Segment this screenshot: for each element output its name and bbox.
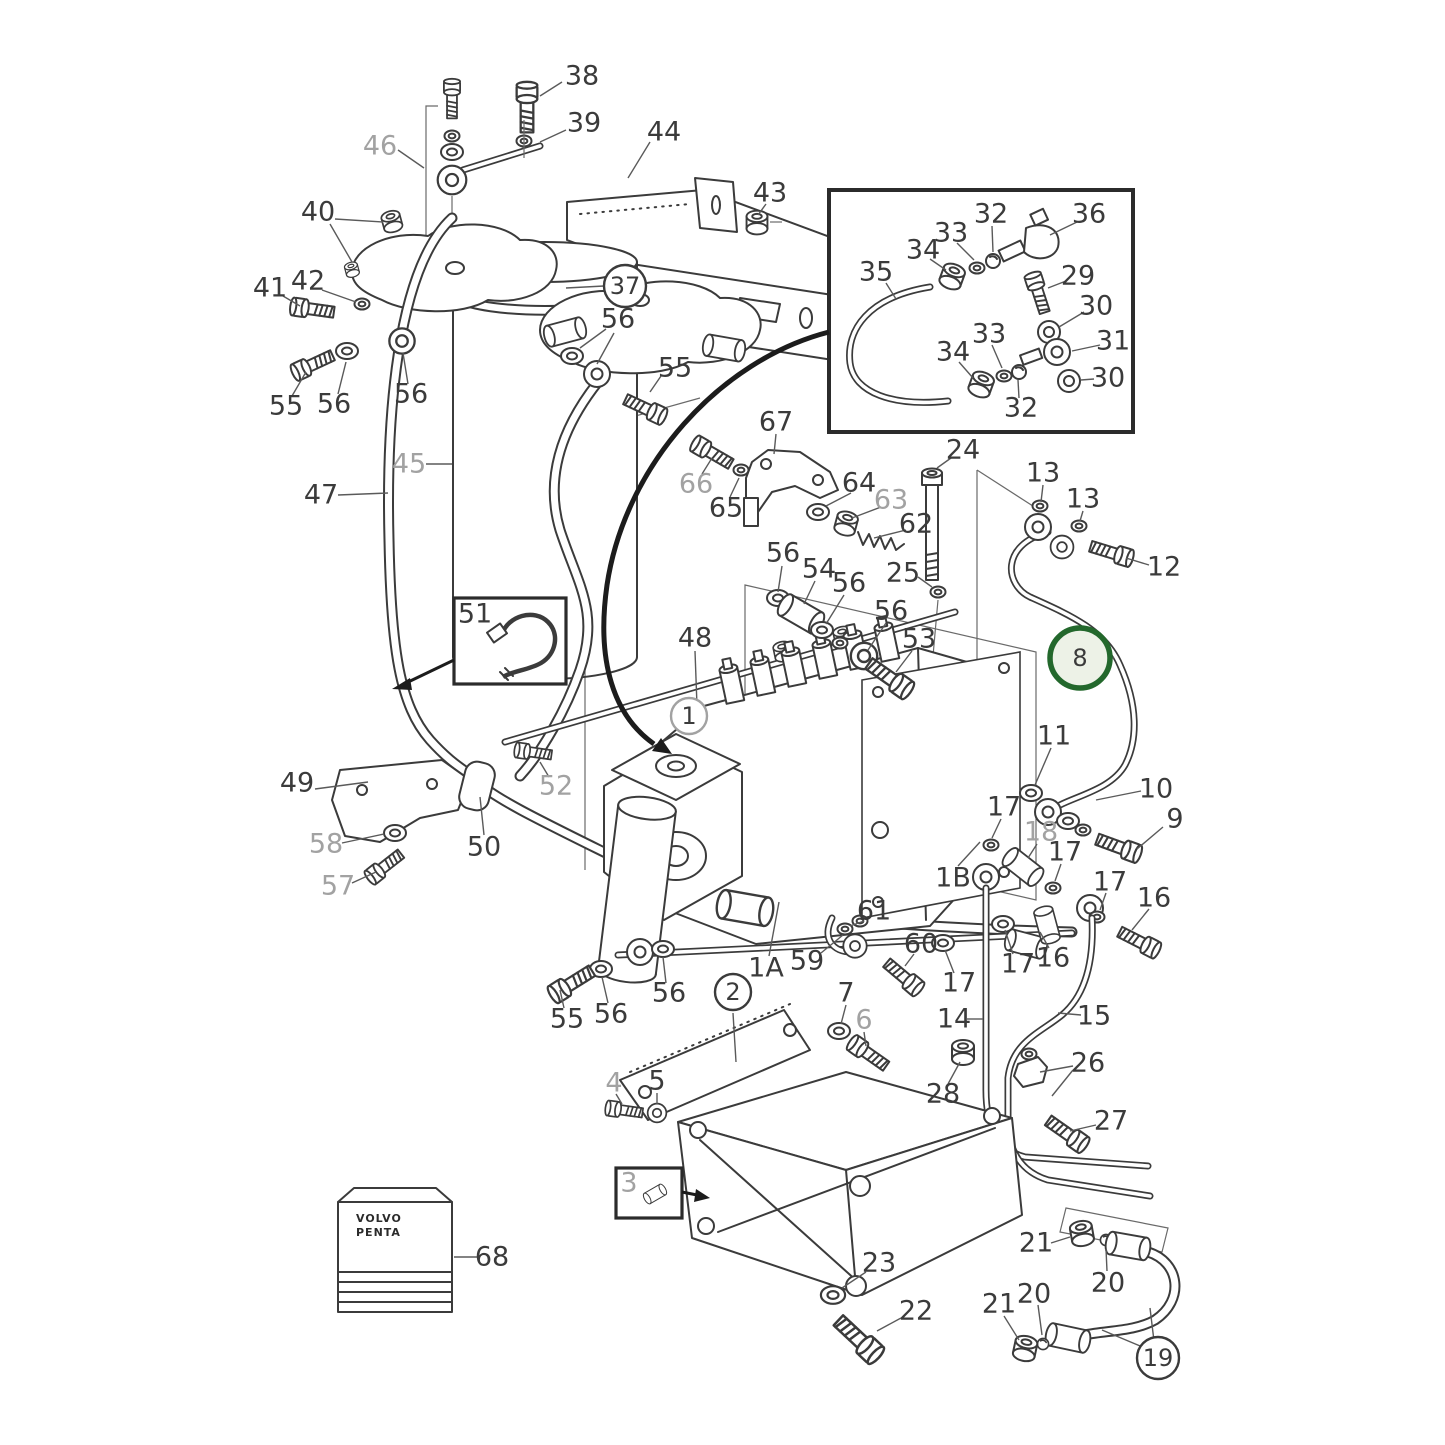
part-number-text: 13 [1026,458,1060,489]
part-callout-9: 9 [1137,804,1184,850]
part-number-text: 53 [902,624,936,655]
part-number-text: 10 [1139,774,1173,805]
part-number-text: 50 [467,832,501,863]
part-number-text: 37 [610,272,641,300]
part-number-text: 47 [304,480,338,511]
part-number-text: 4 [605,1068,622,1099]
part-number-text: 49 [280,768,314,799]
part-callout-56: 56 [594,977,628,1030]
part-number-text: 36 [1072,199,1106,230]
part-number-text: 3 [620,1168,637,1199]
part-callout-3: 3 [620,1168,637,1199]
leader-line [540,82,562,96]
part-number-text: 29 [1061,261,1095,292]
part-number-text: 64 [842,468,876,499]
part-number-text: 2 [725,978,740,1006]
part-number-text: 15 [1077,1001,1111,1032]
part-callout-22: 22 [877,1296,933,1332]
brand-text-penta: PENTA [356,1226,401,1239]
part-callout-7: 7 [837,978,854,1025]
leader-line [540,130,566,142]
part-number-text: 7 [837,978,854,1009]
leader-line [992,226,993,252]
leader-line [1096,791,1141,800]
part-callout-39: 39 [540,108,601,143]
part-callout-24: 24 [937,435,980,469]
part-number-text: 5 [648,1066,665,1097]
part-number-text: 1 [681,702,696,730]
part-number-text: 46 [363,131,397,162]
part-callout-1[interactable]: 1 [671,698,707,734]
leader-line [330,224,352,262]
part-number-text: 20 [1091,1268,1125,1299]
part-number-text: 25 [886,558,920,589]
part-callout-10: 10 [1096,774,1173,805]
part-callout-46: 46 [363,131,424,169]
part-callout-13: 13 [1026,458,1060,503]
part-callout-57: 57 [321,871,376,902]
part-callout-17: 17 [942,950,976,999]
part-number-text: 31 [1096,326,1130,357]
leader-line [826,595,844,624]
part-number-text: 6 [855,1005,872,1036]
decal-box-68: VOLVO PENTA [338,1188,452,1312]
part-callout-59: 59 [790,935,843,977]
part-number-text: 42 [291,266,325,297]
part-number-text: 59 [790,946,824,977]
leader-line [695,651,697,706]
part-callout-13: 13 [1066,484,1100,522]
part-callout-14: 14 [937,1004,983,1035]
part-number-text: 56 [652,978,686,1009]
part-callout-56: 56 [826,568,866,625]
part-callout-28: 28 [926,1062,960,1110]
part-number-text: 21 [1019,1228,1053,1259]
part-number-text: 11 [1037,721,1071,752]
part-number-text: 65 [709,493,743,524]
part-callout-44: 44 [628,117,681,179]
leader-line [1035,748,1051,785]
part-number-text: 56 [317,389,351,420]
part-number-text: 58 [309,829,343,860]
part-number-text: 26 [1071,1048,1105,1079]
leader-line [1070,1125,1096,1131]
part-callout-21: 21 [982,1289,1019,1341]
part-number-text: 51 [458,599,492,630]
part-callout-17: 17 [1048,837,1082,882]
part-number-text: 16 [1036,943,1070,974]
part-number-text: 20 [1017,1279,1051,1310]
part-number-text: 12 [1147,552,1181,583]
part-number-text: 17 [942,968,976,999]
part-number-text: 9 [1166,804,1183,835]
part-callout-51: 51 [458,599,492,630]
part-number-text: 16 [1137,883,1171,914]
part-number-text: 55 [658,353,692,384]
part-callout-65: 65 [709,478,743,524]
part-callout-56: 56 [766,538,800,593]
part-callout-38: 38 [540,61,599,97]
part-number-text: 62 [899,509,933,540]
part-number-text: 14 [937,1004,971,1035]
leader-line [877,1318,901,1331]
part-number-text: 60 [904,929,938,960]
part-number-text: 56 [874,596,908,627]
part-callout-45: 45 [392,449,452,480]
part-number-text: 19 [1143,1344,1174,1372]
brand-text-volvo: VOLVO [356,1212,402,1225]
part-number-text: 23 [862,1248,896,1279]
part-callout-56: 56 [317,362,351,420]
part-number-text: 17 [1048,837,1082,868]
part-callout-60: 60 [904,929,938,967]
part-number-text: 17 [1093,867,1127,898]
leader-line [1137,827,1163,849]
part-number-text: 57 [321,871,355,902]
part-callout-11: 11 [1035,721,1071,786]
part-number-text: 34 [936,337,970,368]
part-number-text: 32 [1004,393,1038,424]
part-number-text: 22 [899,1296,933,1327]
part-number-text: 33 [972,319,1006,350]
part-number-text: 32 [974,199,1008,230]
part-number-text: 55 [550,1004,584,1035]
leader-line [398,150,424,168]
part-number-text: 41 [253,273,287,304]
leader-line [1004,1316,1019,1340]
part-number-text: 17 [1001,949,1035,980]
part-number-text: 35 [859,257,893,288]
part-callout-16: 16 [1132,883,1171,931]
leader-line [778,566,782,592]
part-number-text: 43 [753,178,787,209]
part-number-text: 8 [1072,644,1087,672]
leader-line [1038,1305,1042,1335]
part-number-text: 56 [766,538,800,569]
parts-diagram-page: VOLVO PENTA 3839464440414237565543555656… [0,0,1445,1445]
part-number-text: 30 [1079,291,1113,322]
leader-line [335,219,383,222]
part-callout-47: 47 [304,480,388,511]
part-number-text: 38 [565,61,599,92]
part-number-text: 13 [1066,484,1100,515]
part-number-text: 56 [394,379,428,410]
part-callout-67: 67 [759,407,793,455]
part-number-text: 67 [759,407,793,438]
part-number-text: 61 [857,896,891,927]
part-number-text: 56 [594,999,628,1030]
part-number-text: 28 [926,1079,960,1110]
part-number-text: 52 [539,771,573,802]
part-number-text: 40 [301,197,335,228]
part-callout-8[interactable]: 8 [1050,628,1114,688]
part-number-text: 24 [946,435,980,466]
part-number-text: 27 [1094,1106,1128,1137]
part-number-text: 30 [1091,363,1125,394]
part-callout-26: 26 [1040,1048,1105,1097]
leader-line [338,493,388,495]
leader-line [1051,1237,1070,1243]
parts-diagram-canvas: VOLVO PENTA 3839464440414237565543555656… [0,0,1445,1445]
part-number-text: 68 [475,1242,509,1273]
part-callout-4: 4 [605,1068,622,1105]
part-number-text: 1A [748,953,784,984]
part-number-text: 56 [601,304,635,335]
leader-line [322,290,356,302]
part-number-text: 45 [392,449,426,480]
part-number-text: 39 [567,108,601,139]
part-number-text: 17 [987,792,1021,823]
part-number-text: 56 [832,568,866,599]
part-number-text: 33 [934,218,968,249]
part-number-text: 48 [678,623,712,654]
part-number-text: 44 [647,117,681,148]
part-number-text: 55 [269,391,303,422]
part-callout-52: 52 [539,762,573,802]
part-callout-20: 20 [1017,1279,1051,1336]
part-callout-19[interactable]: 19 [1102,1308,1179,1379]
part-callout-68: 68 [454,1242,509,1273]
part-number-text: 1B [935,863,971,894]
part-callout-61: 61 [850,896,891,927]
part-number-text: 21 [982,1289,1016,1320]
